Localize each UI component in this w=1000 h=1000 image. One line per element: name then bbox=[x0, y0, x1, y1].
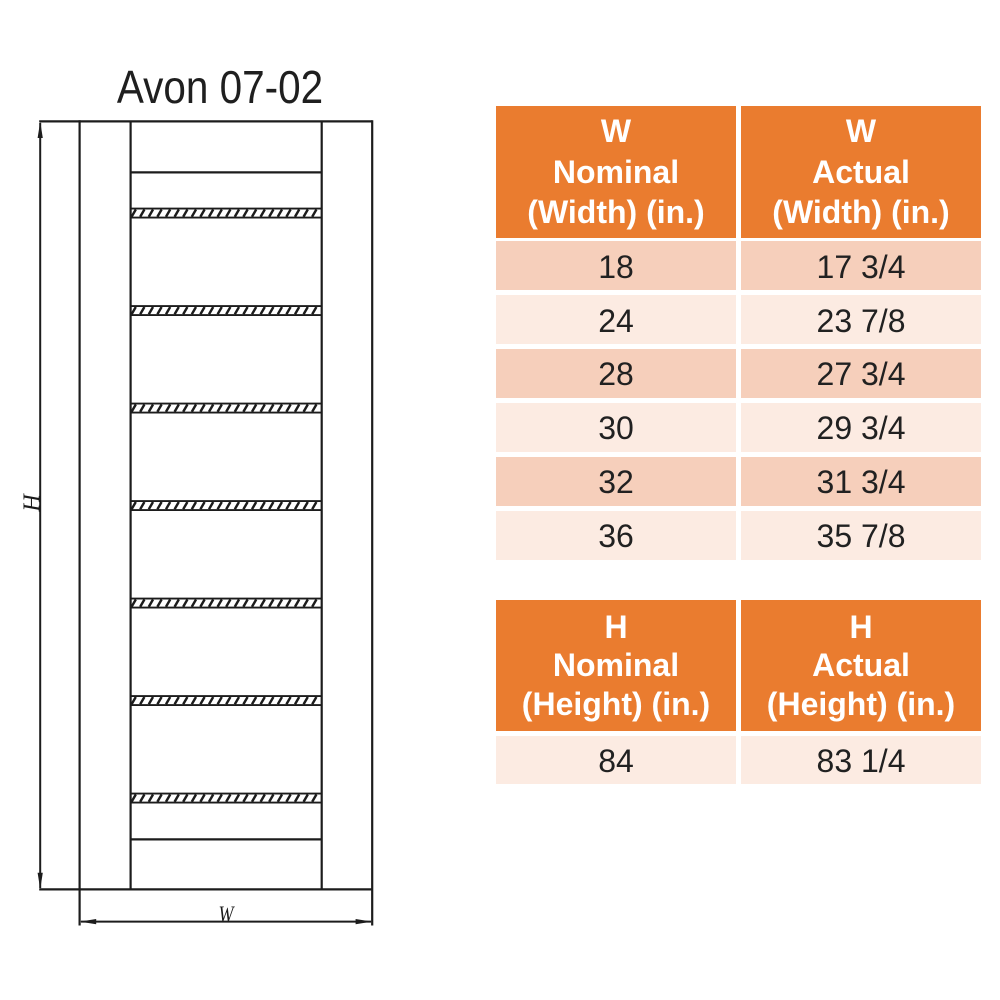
svg-text:H: H bbox=[20, 493, 46, 513]
svg-text:W: W bbox=[219, 902, 235, 927]
